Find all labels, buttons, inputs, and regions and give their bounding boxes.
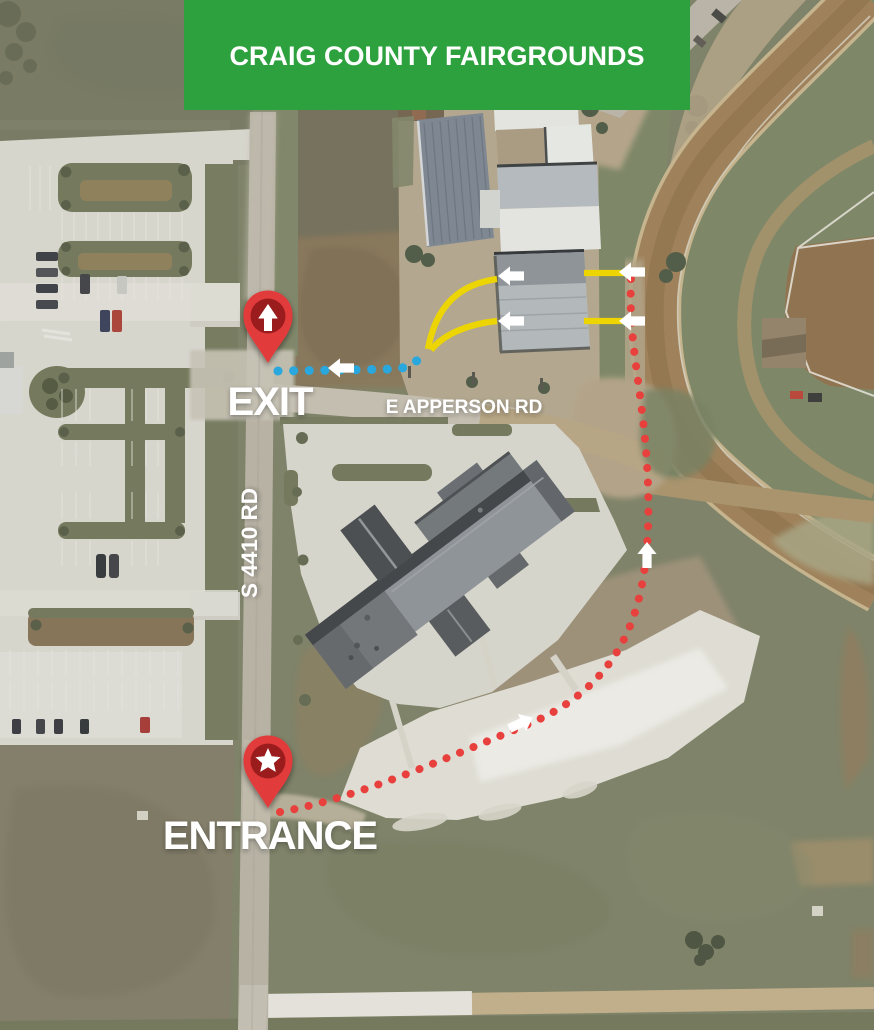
svg-text:EXIT: EXIT [228,380,313,424]
svg-text:S 4410 RD: S 4410 RD [237,488,262,598]
svg-text:CRAIG COUNTY FAIRGROUNDS: CRAIG COUNTY FAIRGROUNDS [229,41,644,71]
svg-text:E APPERSON RD: E APPERSON RD [386,397,543,418]
svg-text:ENTRANCE: ENTRANCE [163,814,378,858]
